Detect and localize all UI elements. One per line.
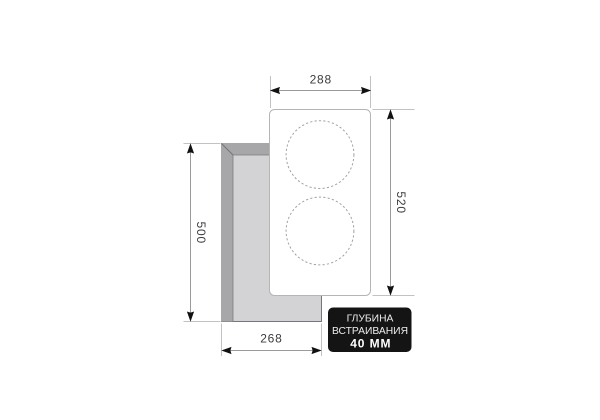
svg-text:288: 288	[310, 73, 332, 87]
svg-text:ГЛУБИНА: ГЛУБИНА	[347, 314, 394, 325]
svg-text:268: 268	[260, 331, 282, 345]
svg-text:520: 520	[394, 191, 408, 213]
svg-text:40 ММ: 40 ММ	[350, 337, 391, 351]
svg-text:500: 500	[194, 221, 208, 243]
